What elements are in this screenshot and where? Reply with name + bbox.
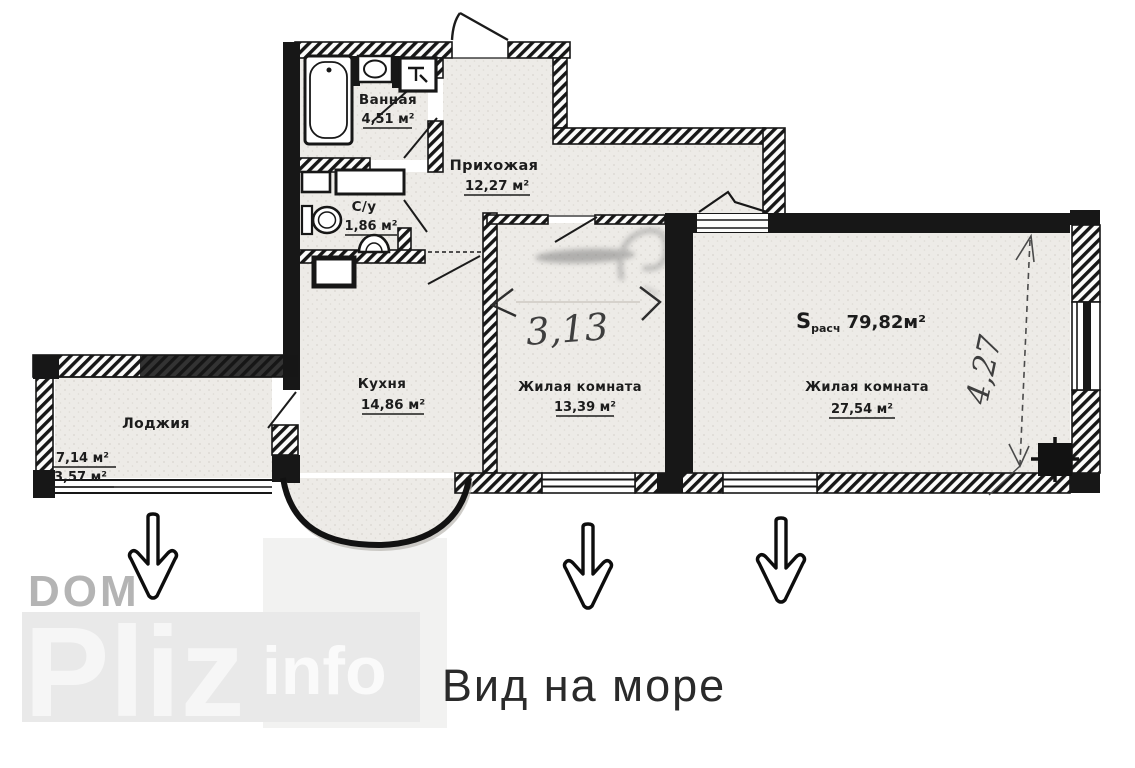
vent-shaft-icon bbox=[314, 258, 354, 286]
kitchen-area: 14,86 м² bbox=[361, 397, 425, 413]
radiator-icon bbox=[1031, 437, 1079, 482]
window-right bbox=[1072, 302, 1100, 390]
sink-icon bbox=[358, 56, 392, 82]
bathroom-area: 4,51 м² bbox=[362, 112, 415, 127]
living2-floor bbox=[693, 232, 1070, 473]
wall-left bbox=[283, 42, 300, 390]
hallway-name: Прихожая bbox=[450, 158, 539, 174]
loggia-door bbox=[268, 392, 296, 428]
kitchen-name: Кухня bbox=[358, 376, 407, 392]
loggia-area-full: 7,14 м² bbox=[56, 451, 109, 466]
watermark-pliz: Pliz bbox=[24, 601, 245, 744]
wall-living1-living2 bbox=[665, 213, 693, 473]
kitchen-floor bbox=[300, 262, 483, 473]
watermark: DOM Pliz info bbox=[22, 538, 447, 744]
down-arrow-icon bbox=[565, 524, 612, 608]
wall-hallway-top bbox=[553, 128, 765, 144]
toilet-icon bbox=[302, 206, 341, 234]
wall-kitchen-living1 bbox=[483, 213, 497, 473]
kitchen-bay-floor bbox=[283, 478, 469, 545]
living2-name: Жилая комната bbox=[805, 380, 929, 395]
window-living2 bbox=[723, 473, 817, 493]
floorplan-drawing: DOM Pliz info bbox=[0, 0, 1135, 768]
living2-area: 27,54 м² bbox=[831, 402, 893, 417]
bathroom-name: Ванная bbox=[359, 92, 417, 108]
wc-name: С/у bbox=[352, 199, 377, 215]
view-arrows bbox=[130, 514, 805, 608]
dim-value-living1: 3,13 bbox=[525, 305, 610, 354]
watermark-info: info bbox=[262, 633, 387, 709]
down-arrow-icon bbox=[758, 518, 805, 602]
cabinet-icon bbox=[302, 172, 330, 192]
wall-loggia-left bbox=[36, 377, 53, 472]
loggia-area-reduced: 3,57 м² bbox=[54, 470, 107, 485]
hallway-area: 12,27 м² bbox=[465, 178, 529, 194]
living1-name: Жилая комната bbox=[518, 380, 642, 395]
wall-bottom bbox=[817, 473, 1070, 493]
shower-tray-icon bbox=[336, 170, 404, 194]
loggia-name: Лоджия bbox=[122, 416, 190, 432]
floorplan-page: DOM Pliz info bbox=[0, 0, 1135, 768]
living1-area: 13,39 м² bbox=[554, 400, 616, 415]
washing-machine-icon bbox=[400, 58, 436, 91]
bathtub-icon bbox=[305, 56, 352, 144]
entrance-door bbox=[452, 13, 508, 58]
wc-area: 1,86 м² bbox=[345, 219, 398, 234]
caption-view: Вид на море bbox=[442, 660, 726, 711]
window-living1 bbox=[542, 473, 635, 493]
